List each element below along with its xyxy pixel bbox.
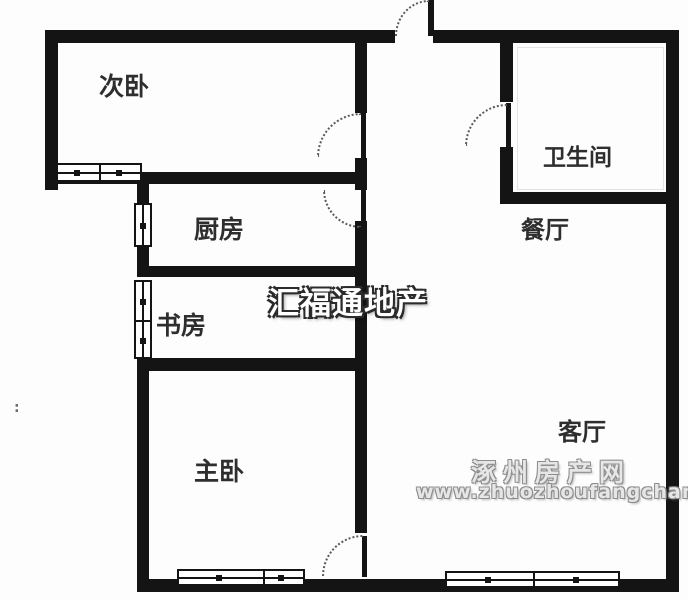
shaft-wall-stub-top <box>137 183 149 205</box>
top-wall-left <box>45 30 395 43</box>
window-mark <box>573 577 579 583</box>
kitchen-door-leaf <box>361 190 366 221</box>
bedroom2-door-leaf <box>361 113 366 158</box>
living-room-window <box>445 571 620 588</box>
bathroom-door-arc <box>465 104 507 146</box>
window-mark <box>485 577 491 583</box>
bathroom-left-wall-upper <box>500 43 513 102</box>
window-divider <box>99 165 101 180</box>
window-mark <box>140 338 146 344</box>
entrance-door-arc <box>395 0 429 36</box>
shaft-wall-stub-mid <box>137 245 149 268</box>
bedroom2-window <box>56 163 142 182</box>
agency-watermark: 汇福通地产 <box>268 289 428 320</box>
window-mark <box>216 575 222 581</box>
room-label-study: 书房 <box>156 313 206 338</box>
central-wall-top <box>355 30 367 113</box>
room-label-secondary-bedroom: 次卧 <box>99 74 149 99</box>
room-label-master-bedroom: 主卧 <box>194 459 244 484</box>
right-outer-wall <box>666 30 679 592</box>
window-divider <box>263 571 265 584</box>
kitchen-door-arc <box>323 190 361 228</box>
stray-mark: : <box>14 401 20 415</box>
window-divider <box>136 320 150 322</box>
window-midline <box>179 577 303 579</box>
kitchen-window <box>134 203 152 247</box>
room-label-living-room: 客厅 <box>558 420 606 444</box>
room-label-kitchen: 厨房 <box>194 217 244 242</box>
master-bedroom-left-wall <box>137 358 149 592</box>
room-label-dining-room: 餐厅 <box>521 218 569 242</box>
floor-plan: 次卧 厨房 书房 主卧 卫生间 餐厅 客厅 汇福通地产 涿州房产网 www.zh… <box>0 0 688 600</box>
bathroom-bottom-wall <box>500 192 679 204</box>
study-window <box>134 280 152 359</box>
window-mark <box>116 170 122 176</box>
bathroom-left-wall-lower <box>500 147 513 192</box>
kitchen-bottom-wall <box>137 266 367 277</box>
window-mark <box>140 223 146 229</box>
top-wall-right <box>433 30 679 43</box>
master-door-arc <box>322 535 363 576</box>
window-mark <box>140 299 146 305</box>
window-divider <box>533 573 535 586</box>
site-url-watermark: www.zhuozhoufangchan.com <box>416 483 688 502</box>
window-mark <box>278 575 284 581</box>
window-mark <box>74 170 80 176</box>
central-wall-long <box>355 221 367 533</box>
master-bedroom-window <box>177 569 305 586</box>
central-wall-mid <box>355 158 367 190</box>
bedroom2-door-arc <box>317 113 361 157</box>
room-label-bathroom: 卫生间 <box>543 147 612 170</box>
study-bottom-wall <box>137 358 367 371</box>
